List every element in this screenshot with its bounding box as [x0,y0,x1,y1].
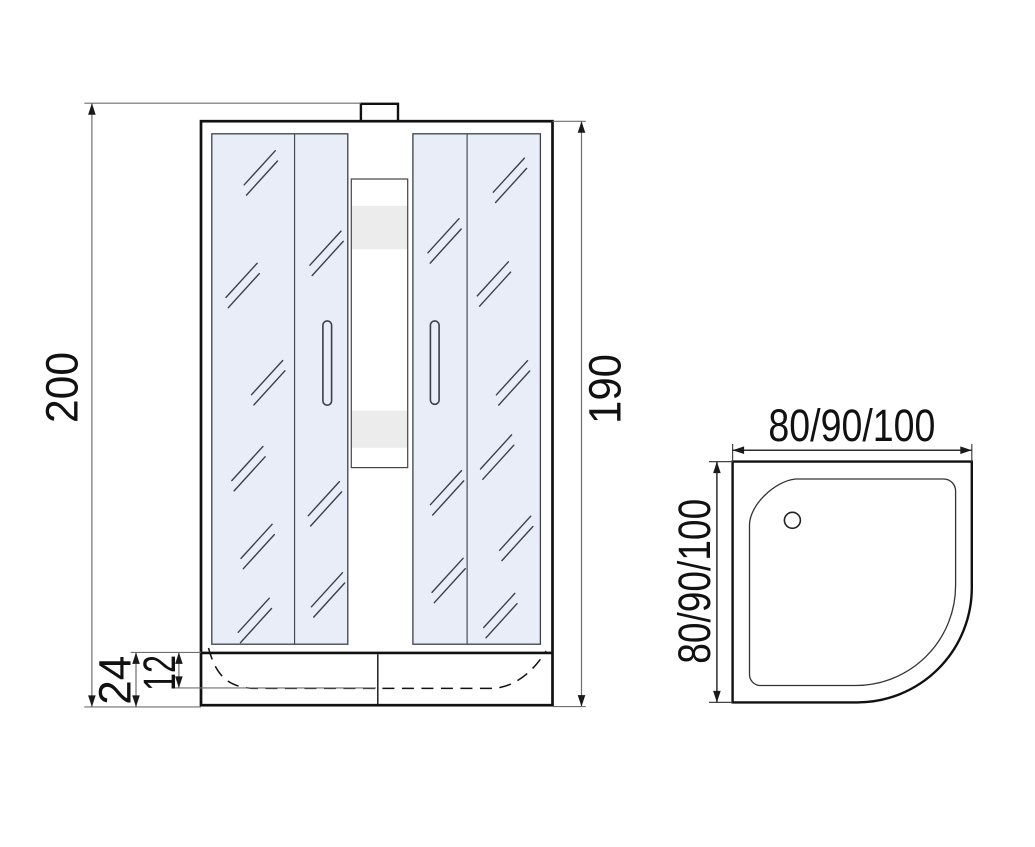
svg-text:24: 24 [89,656,140,705]
svg-text:80/90/100: 80/90/100 [669,499,720,664]
svg-text:200: 200 [36,352,87,423]
svg-text:80/90/100: 80/90/100 [768,400,935,451]
svg-text:12: 12 [134,655,185,691]
svg-text:190: 190 [579,354,630,424]
